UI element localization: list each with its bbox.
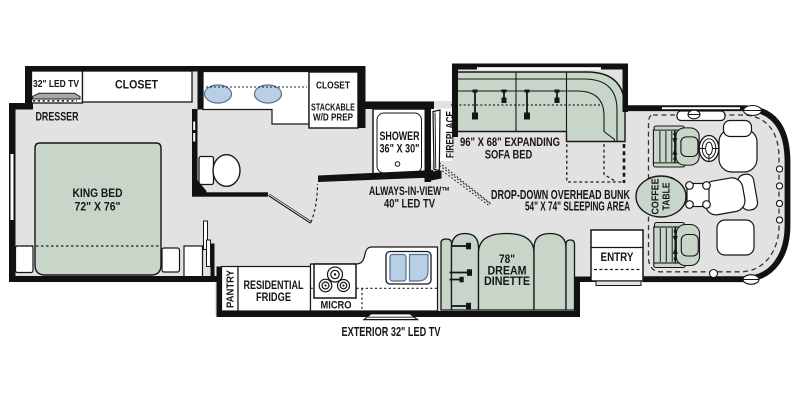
svg-text:RESIDENTIAL: RESIDENTIAL	[244, 280, 304, 292]
svg-text:FRIDGE: FRIDGE	[256, 292, 291, 304]
svg-text:DINETTE: DINETTE	[484, 274, 530, 288]
svg-text:32" LED TV: 32" LED TV	[33, 78, 79, 90]
svg-text:KING BED: KING BED	[73, 186, 123, 200]
svg-text:SOFA BED: SOFA BED	[485, 148, 533, 162]
svg-text:DRESSER: DRESSER	[36, 110, 79, 124]
svg-text:MICRO: MICRO	[321, 300, 352, 312]
svg-text:36" X 30": 36" X 30"	[380, 144, 420, 156]
svg-text:ENTRY: ENTRY	[601, 250, 634, 264]
svg-text:ALWAYS-IN-VIEW™: ALWAYS-IN-VIEW™	[369, 186, 450, 198]
svg-text:54" X 74" SLEEPING AREA: 54" X 74" SLEEPING AREA	[525, 200, 630, 214]
svg-text:CLOSET: CLOSET	[316, 80, 350, 92]
svg-text:EXTERIOR 32" LED TV: EXTERIOR 32" LED TV	[342, 325, 441, 339]
svg-text:72" X 76": 72" X 76"	[75, 200, 121, 214]
svg-text:PANTRY: PANTRY	[225, 270, 237, 308]
svg-text:40" LED TV: 40" LED TV	[384, 199, 435, 211]
svg-text:W/D PREP: W/D PREP	[313, 112, 353, 124]
svg-text:FIREPLACE: FIREPLACE	[445, 111, 457, 158]
svg-text:SHOWER: SHOWER	[380, 131, 421, 143]
svg-text:TABLE: TABLE	[662, 182, 673, 210]
svg-text:COFFEE: COFFEE	[651, 178, 662, 214]
svg-text:CLOSET: CLOSET	[115, 78, 159, 92]
